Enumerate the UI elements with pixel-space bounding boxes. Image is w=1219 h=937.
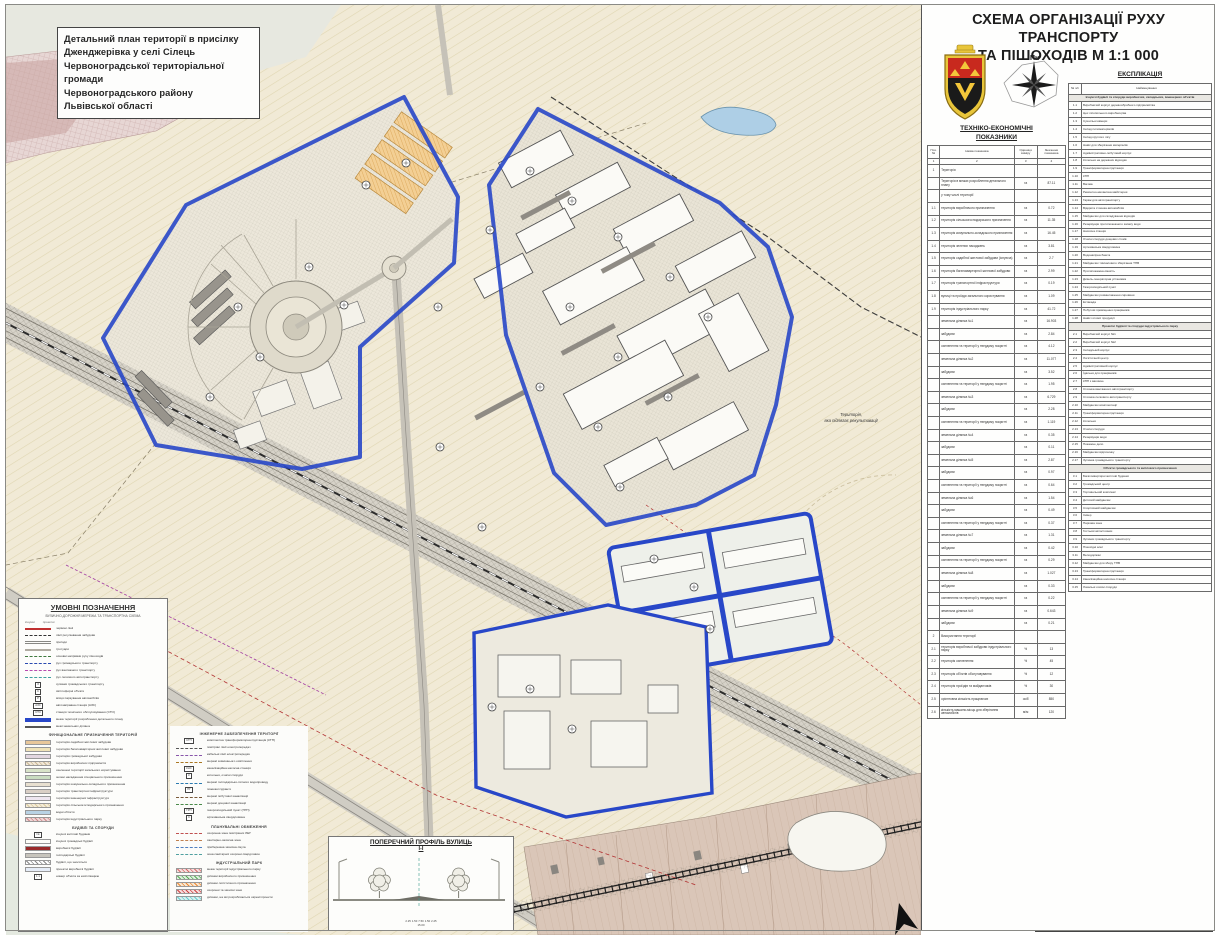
legend-item: будівлі, що зносяться	[23, 859, 163, 866]
legend-item: зелені насадження спеціального призначен…	[23, 774, 163, 781]
legend-item: №існуючі житлові будинки	[23, 831, 163, 838]
legend-item: КТПкомплектна трансформаторна підстанція…	[174, 738, 304, 745]
legend-item: охоронна зона повітряних ЛЕП	[174, 830, 304, 837]
project-title-block: Детальний план території в присілку Джен…	[57, 27, 260, 119]
explication-row: 1.23Дизель-генераторна установка	[1069, 276, 1212, 284]
legend-item: проїзди	[23, 639, 163, 646]
explication-row: 3.2Громадський центр	[1069, 481, 1212, 489]
explication-row: 1.11Вагова	[1069, 181, 1212, 189]
south-cluster	[474, 605, 712, 817]
tep-row: забудовига2.84	[928, 328, 1066, 341]
legend-engineering: ІНЖЕНЕРНЕ ЗАБЕЗПЕЧЕННЯ ТЕРИТОРІЇКТПкомпл…	[170, 726, 308, 932]
tep-row: озеленення та території у твердому покри…	[928, 517, 1066, 530]
legend-item: межа території індустріального парку	[174, 867, 304, 874]
explication-row: 1.26Естакада	[1069, 299, 1212, 307]
tep-row: 1.8вулиці та проїзди загального користув…	[928, 291, 1066, 304]
tep-row: озеленення та території у твердому покри…	[928, 593, 1066, 606]
legend-item: Ссвітлофорні об'єкти	[23, 688, 163, 695]
tep-row: 2Використання території	[928, 631, 1066, 644]
legend-item: червоні лінії	[23, 625, 163, 632]
tep-row: озеленення та території у твердому покри…	[928, 479, 1066, 492]
profile-total: 15.00	[329, 923, 513, 927]
tep-table-block: ТЕХНІКО-ЕКОНОМІЧНІ ПОКАЗНИКИ Поз. №Назва…	[927, 125, 1066, 719]
tep-row: Територія в межах розроблення детального…	[928, 177, 1066, 190]
legend-items-b: ІНЖЕНЕРНЕ ЗАБЕЗПЕЧЕННЯ ТЕРИТОРІЇКТПкомпл…	[174, 732, 304, 902]
explication-row: 3.4Дитячий майданчик	[1069, 496, 1212, 504]
explication-row: 1.6Навіс для зберігання матеріалів	[1069, 141, 1212, 149]
legend-item: ділянки логістичного призначення	[174, 881, 304, 888]
tep-row: 2.6кількість машино-місць для зберігання…	[928, 706, 1066, 719]
explication-row: 3.3Торговельний комплекс	[1069, 489, 1212, 497]
legend-item: мережі господарсько-питного водопроводу	[174, 780, 304, 787]
explication-row: 1.7Адміністративно-побутовий корпус	[1069, 149, 1212, 157]
tep-row: забудовига0.42	[928, 542, 1066, 555]
tep-row: земельна ділянка №2га11.077	[928, 354, 1066, 367]
title-line: Червоноградського району	[64, 87, 253, 100]
tep-row: 1.6територія багатоквартирної житлової з…	[928, 265, 1066, 278]
legend-item: територія інженерної інфраструктури	[23, 795, 163, 802]
title-line: Червоноградської територіальної громади	[64, 60, 253, 87]
tep-row: 2.1територія виробничої забудови індустр…	[928, 643, 1066, 656]
compass-north-label: Пн	[1030, 55, 1039, 62]
title-line: Дженджерівка у селі Сілець	[64, 46, 253, 59]
compass-rose: Пн	[1000, 51, 1062, 119]
explication-row: 3.15Локальні очисні споруди	[1069, 583, 1212, 591]
legend-item: територія сільськогосподарського признач…	[23, 802, 163, 809]
explication-row: 2.13Очисні споруди	[1069, 425, 1212, 433]
legend-section-head: ФУНКЦІОНАЛЬНЕ ПРИЗНАЧЕННЯ ТЕРИТОРІЙ	[23, 733, 163, 737]
tep-row: озеленення та території у твердому покри…	[928, 379, 1066, 392]
profile-title: ПОПЕРЕЧНИЙ ПРОФІЛЬ ВУЛИЦЬ	[329, 839, 513, 846]
explication-row: 1.25Майданчик розвантаження сировини	[1069, 291, 1212, 299]
explication-row: 2.14Резервуари води	[1069, 433, 1212, 441]
legend-item: санітарно-захисна зона	[174, 837, 304, 844]
tep-row: забудовига0.49	[928, 505, 1066, 518]
explication-row: 1.8Котельня на деревних відходах	[1069, 157, 1212, 165]
tep-row: забудовига0.21	[928, 618, 1066, 631]
legend-item: мережі дощової каналізації	[174, 801, 304, 808]
legend-item: територія громадської забудови	[23, 753, 163, 760]
explication-section-header: Об'єкти громадського та житлового призна…	[1069, 465, 1212, 473]
legend-main: УМОВНІ ПОЗНАЧЕННЯ ВУЛИЧНО-ДОРОЖНЯ МЕРЕЖА…	[18, 598, 168, 932]
tep-row: 1.1територія виробничого призначенняга0.…	[928, 202, 1066, 215]
explication-row: 1.18Очисні споруди дощових стоків	[1069, 236, 1212, 244]
explication-row: 2.10Майданчик комплектації	[1069, 402, 1212, 410]
legend-item: господарські будівлі	[23, 852, 163, 859]
explication-row: 2.15Пожежне депо	[1069, 441, 1212, 449]
explication-row: 2.8Стоянка вантажного автотранспорту	[1069, 386, 1212, 394]
legend-item: мережі зовнішнього освітлення	[174, 759, 304, 766]
explication-row: 1.14Відкрита стоянка автомобілів	[1069, 205, 1212, 213]
tep-row: озеленення та території у твердому покри…	[928, 341, 1066, 354]
legend-column-heads: існуючі проектні	[25, 620, 163, 624]
legend-item: АЗСавтозаправна станція (АЗС)	[23, 702, 163, 709]
explication-row: 1.28Навіс готової продукції	[1069, 315, 1212, 323]
legend-item: Сартезіанська свердловина	[174, 815, 304, 822]
legend-item: тротуари	[23, 646, 163, 653]
legend-item: межі земельних ділянок	[23, 723, 163, 730]
tep-row: 1.4територія зелених насадженьга3.81	[928, 240, 1066, 253]
legend-item: територія садибної житлової забудови	[23, 739, 163, 746]
explication-row: 2.16Майданчик відпочинку	[1069, 449, 1212, 457]
explication-row: 1.24Газорозподільний пункт	[1069, 283, 1212, 291]
explication-row: 1.22Протипожежна ємність	[1069, 268, 1212, 276]
legend-items-a: червоні лініїлінії регулювання забудовип…	[23, 625, 163, 880]
explication-row: 2.3Складський корпус	[1069, 347, 1212, 355]
legend-item: Ккотельня, очисні споруди	[174, 773, 304, 780]
explication-row: 3.8Гостьові автостоянки	[1069, 528, 1212, 536]
legend-item: кабельні лінії електропередач	[174, 752, 304, 759]
legend-item: межа території розроблення детального пл…	[23, 716, 163, 723]
explication-row: 1.9Трансформаторна підстанція	[1069, 165, 1212, 173]
explication-row: 3.13Трансформаторна підстанція	[1069, 568, 1212, 576]
tep-row: земельна ділянка №8га1.027	[928, 568, 1066, 581]
explication-row: 2.2Виробничий корпус №2	[1069, 339, 1212, 347]
legend-item: охоронні та захисні зони	[174, 888, 304, 895]
legend-item: ділянки виробничого призначення	[174, 874, 304, 881]
explication-row: 1.27Побутові приміщення працівників	[1069, 307, 1212, 315]
legend-title: УМОВНІ ПОЗНАЧЕННЯ	[23, 603, 163, 612]
tep-row: 1.7територія транспортної інфраструктури…	[928, 278, 1066, 291]
legend-colhead-projected: проектні	[43, 620, 55, 624]
explication-row: 1.5Склад круглого лісу	[1069, 134, 1212, 142]
explication-row: 2.11Трансформаторна підстанція	[1069, 410, 1212, 418]
legend-item: 1.1номер об'єкта за експлікацією	[23, 873, 163, 880]
tep-row: 1.3територія комунально-складського приз…	[928, 228, 1066, 241]
legend-item: рух громадського транспорту	[23, 660, 163, 667]
legend-item: водні об'єкти	[23, 809, 163, 816]
explication-row: 1.1Виробничий корпус деревообробного під…	[1069, 102, 1212, 110]
explication-row: 1.13Гараж для автотранспорту	[1069, 197, 1212, 205]
tep-row: забудовига2.28	[928, 404, 1066, 417]
legend-item: виробничі будівлі	[23, 845, 163, 852]
explication-row: 3.11Велодоріжки	[1069, 552, 1212, 560]
tep-table: Поз. №Назва показника Одиниця виміруЗнач…	[927, 145, 1066, 719]
legend-item: проектні виробничі будівлі	[23, 866, 163, 873]
legend-item: ділянки, на які розробляються окремі про…	[174, 895, 304, 902]
legend-section-head: ІНДУСТРІАЛЬНИЙ ПАРК	[174, 861, 304, 865]
legend-item: озеленені території загального користува…	[23, 767, 163, 774]
legend-subtitle: ВУЛИЧНО-ДОРОЖНЯ МЕРЕЖА ТА ТРАНСПОРТНА СХ…	[23, 614, 163, 618]
explication-row: 1.4Склад пиломатеріалів	[1069, 126, 1212, 134]
explication-row: 3.1Багатоквартирні житлові будинки	[1069, 473, 1212, 481]
tep-row: 2.2територія озеленення%45	[928, 656, 1066, 669]
scheme-title-line1: СХЕМА ОРГАНІЗАЦІЇ РУХУ ТРАНСПОРТУ	[926, 11, 1211, 47]
explication-row: 1.12Ремонтно-механічна майстерня	[1069, 189, 1212, 197]
explication-row: 3.12Майданчик для збору ТПВ	[1069, 560, 1212, 568]
explication-row: 1.3Сушильні камери	[1069, 118, 1212, 126]
explication-row: 2.1Виробничий корпус №1	[1069, 331, 1212, 339]
legend-item: лінії регулювання забудови	[23, 632, 163, 639]
legend-section-head: БУДІВЛІ ТА СПОРУДИ	[23, 826, 163, 830]
legend-colhead-existing: існуючі	[25, 620, 35, 624]
explication-row: 1.17Насосна станція	[1069, 228, 1212, 236]
plan-sheet: Територія,яка підлягає рекультивації Дет…	[0, 0, 1219, 937]
svg-text:Територія,: Територія,	[840, 412, 862, 417]
tep-row: 1.2територія сільськогосподарського приз…	[928, 215, 1066, 228]
legend-item: СТОстанція технічного обслуговування (СТ…	[23, 709, 163, 716]
legend-item: КНСканалізаційна насосна станція	[174, 766, 304, 773]
legend-item: територія індустріального парку	[23, 816, 163, 823]
legend-item: територія транспортної інфраструктури	[23, 788, 163, 795]
tep-row: 1.5територія садибної житлової забудови …	[928, 253, 1066, 266]
legend-item: Ззупинки громадського транспорту	[23, 681, 163, 688]
tep-title-2: ПОКАЗНИКИ	[927, 134, 1066, 143]
title-line: Детальний план території в присілку	[64, 33, 253, 46]
explication-row: 1.20Водонапірна башта	[1069, 252, 1212, 260]
tep-row: 1Територія	[928, 165, 1066, 178]
legend-item: ГРПгазорозподільний пункт (ГРП)	[174, 808, 304, 815]
explication-row: 1.10КПП	[1069, 173, 1212, 181]
tep-row: земельна ділянка №3га6.729	[928, 391, 1066, 404]
explication-row: 1.15Майданчик для складування відходів	[1069, 212, 1212, 220]
explication-row: 3.6Сквер	[1069, 512, 1212, 520]
legend-item: мережі побутової каналізації	[174, 794, 304, 801]
legend-item: територія багатоквартирної житлової забу…	[23, 746, 163, 753]
title-line: Львівської області	[64, 100, 253, 113]
explication-block: ЕКСПЛІКАЦІЯ № з/пНайменування Існуючі бу…	[1068, 71, 1212, 592]
street-profile-1: ПОПЕРЕЧНИЙ ПРОФІЛЬ ВУЛИЦЬ І-І 2.251.507.…	[328, 836, 514, 931]
explication-row: 3.5Спортивний майданчик	[1069, 504, 1212, 512]
explication-table: № з/пНайменування Існуючі будівлі та спо…	[1068, 83, 1212, 592]
tep-row: забудовига0.33	[928, 580, 1066, 593]
explication-row: 2.7КПП з ваговою	[1069, 378, 1212, 386]
explication-title: ЕКСПЛІКАЦІЯ	[1068, 71, 1212, 80]
tep-title-1: ТЕХНІКО-ЕКОНОМІЧНІ	[927, 125, 1066, 134]
explication-row: 3.9Зупинки громадського транспорту	[1069, 536, 1212, 544]
tep-row: 2.3територія об'єктів обслуговування%12	[928, 668, 1066, 681]
explication-row: 1.2Цех лісопильного виробництва	[1069, 110, 1212, 118]
legend-item: повітряні лінії електропередач	[174, 745, 304, 752]
explication-section-header: Існуючі будівлі та споруди виробничих, с…	[1069, 94, 1212, 102]
coat-of-arms	[939, 43, 991, 125]
explication-row: 3.7Паркова зона	[1069, 520, 1212, 528]
legend-item: рух вантажного транспорту	[23, 667, 163, 674]
tep-row: земельна ділянка №1га16.903	[928, 316, 1066, 329]
explication-row: 2.12Котельня	[1069, 418, 1212, 426]
legend-section-head: ПЛАНУВАЛЬНІ ОБМЕЖЕННЯ	[174, 825, 304, 829]
tep-row: 2.5орієнтовна кількість працюючихосіб850	[928, 694, 1066, 707]
explication-row: 1.19Артезіанська свердловина	[1069, 244, 1212, 252]
explication-row: 2.9Стоянка легкового автотранспорту	[1069, 394, 1212, 402]
profile-drawing	[329, 852, 509, 914]
legend-item: основні напрямки руху пішоходів	[23, 653, 163, 660]
tep-row: 1.9територія індустріального паркуга41.7…	[928, 303, 1066, 316]
tep-row: озеленення та території у твердому покри…	[928, 555, 1066, 568]
explication-row: 2.4Логістичний центр	[1069, 354, 1212, 362]
tep-row: земельна ділянка №7га1.31	[928, 530, 1066, 543]
legend-item: існуючі громадські будівлі	[23, 838, 163, 845]
tep-row: забудовига0.97	[928, 467, 1066, 480]
legend-section-head: ІНЖЕНЕРНЕ ЗАБЕЗПЕЧЕННЯ ТЕРИТОРІЇ	[174, 732, 304, 736]
explication-row: 2.17Зупинка громадського транспорту	[1069, 457, 1212, 465]
svg-text:яка підлягає рекультивації: яка підлягає рекультивації	[823, 418, 878, 423]
tep-row: 2.4територія проїздів та майданчиків%30	[928, 681, 1066, 694]
explication-section-header: Проектні будівлі та споруди індустріальн…	[1069, 323, 1212, 331]
legend-item: Pмісця паркування автомобілів	[23, 695, 163, 702]
legend-item: територія комунально-складського признач…	[23, 781, 163, 788]
explication-row: 2.5Адміністративний корпус	[1069, 362, 1212, 370]
explication-row: 3.10Пішохідні алеї	[1069, 544, 1212, 552]
right-panel: СХЕМА ОРГАНІЗАЦІЇ РУХУ ТРАНСПОРТУ ТА ПІШ…	[921, 5, 1214, 931]
legend-item: зона санітарної охорони свердловин	[174, 851, 304, 858]
explication-row: 1.21Майданчик тимчасового зберігання ТПВ	[1069, 260, 1212, 268]
tep-row: забудовига3.52	[928, 366, 1066, 379]
legend-item: прибережна захисна смуга	[174, 844, 304, 851]
legend-item: ПГпожежні гідранти	[174, 787, 304, 794]
tep-row: земельна ділянка №6га1.54	[928, 492, 1066, 505]
tep-row: земельна ділянка №4га0.35	[928, 429, 1066, 442]
legend-item: рух легкового автотранспорту	[23, 674, 163, 681]
tep-row: земельна ділянка №5га2.87	[928, 454, 1066, 467]
tep-row: забудовига0.11	[928, 442, 1066, 455]
explication-row: 2.6Їдальня для працівників	[1069, 370, 1212, 378]
explication-row: 3.14Каналізаційна насосна станція	[1069, 575, 1212, 583]
tep-row: у тому числі території:	[928, 190, 1066, 203]
tep-row: земельна ділянка №9га0.643	[928, 605, 1066, 618]
tep-row: озеленення та території у твердому покри…	[928, 417, 1066, 430]
explication-row: 1.16Резервуари протипожежного запасу вод…	[1069, 220, 1212, 228]
legend-item: територія виробничих підприємств	[23, 760, 163, 767]
